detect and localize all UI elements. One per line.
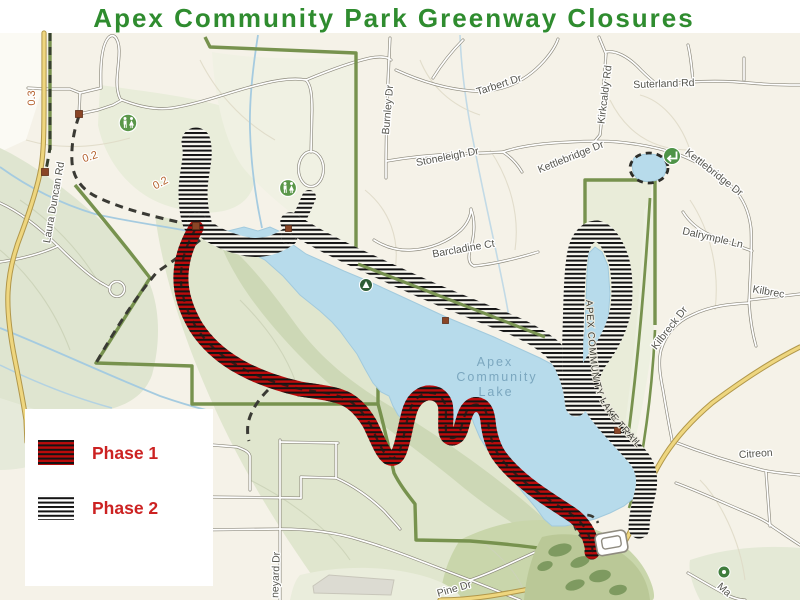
svg-text:Phase 1: Phase 1 [92,443,158,463]
svg-text:Lake: Lake [478,385,513,399]
svg-text:Apex: Apex [477,355,514,369]
svg-text:neyard Dr: neyard Dr [269,551,283,598]
svg-text:Phase 2: Phase 2 [92,498,158,518]
svg-text:Suterland Rd: Suterland Rd [633,77,695,91]
svg-text:Citreon: Citreon [738,447,773,461]
svg-text:Community: Community [456,370,537,384]
svg-text:Apex Community Park Greenway C: Apex Community Park Greenway Closures [93,3,694,33]
svg-text:0.3: 0.3 [26,90,38,105]
